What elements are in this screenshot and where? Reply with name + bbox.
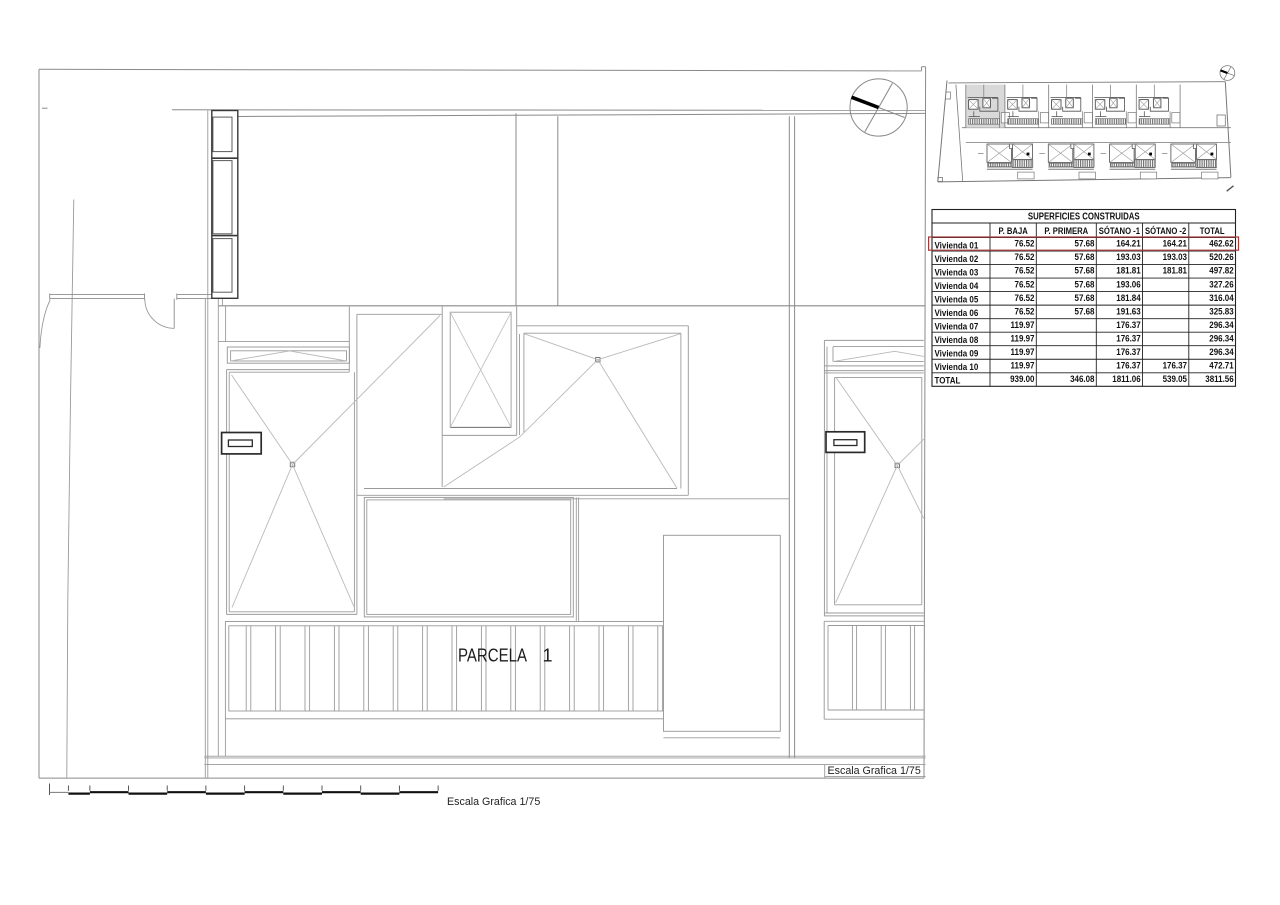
svg-text:76.52: 76.52	[1015, 292, 1035, 303]
svg-text:Vivienda 07: Vivienda 07	[934, 321, 978, 332]
svg-text:3811.56: 3811.56	[1205, 373, 1234, 384]
svg-text:TOTAL: TOTAL	[934, 375, 960, 386]
svg-text:296.34: 296.34	[1209, 319, 1234, 330]
svg-text:327.26: 327.26	[1209, 279, 1234, 290]
svg-text:Vivienda 05: Vivienda 05	[934, 294, 978, 305]
svg-text:193.03: 193.03	[1116, 252, 1141, 263]
svg-text:176.37: 176.37	[1116, 346, 1141, 357]
svg-text:SÓTANO -1: SÓTANO -1	[1099, 224, 1140, 236]
svg-text:191.63: 191.63	[1116, 306, 1141, 317]
svg-text:SÓTANO -2: SÓTANO -2	[1145, 224, 1186, 236]
svg-text:76.52: 76.52	[1015, 265, 1035, 276]
svg-text:P. BAJA: P. BAJA	[999, 225, 1029, 236]
svg-text:193.03: 193.03	[1163, 252, 1188, 263]
svg-text:Vivienda 08: Vivienda 08	[934, 334, 978, 345]
svg-text:Vivienda 03: Vivienda 03	[934, 267, 978, 278]
svg-text:P. PRIMERA: P. PRIMERA	[1044, 225, 1088, 236]
svg-text:181.81: 181.81	[1116, 265, 1141, 276]
svg-text:462.62: 462.62	[1209, 238, 1234, 249]
svg-text:164.21: 164.21	[1116, 238, 1141, 249]
svg-text:76.52: 76.52	[1015, 279, 1035, 290]
svg-text:57.68: 57.68	[1075, 292, 1095, 303]
svg-text:Vivienda 10: Vivienda 10	[934, 362, 978, 373]
svg-text:119.97: 119.97	[1011, 319, 1035, 330]
svg-text:497.82: 497.82	[1209, 265, 1234, 276]
svg-text:472.71: 472.71	[1209, 360, 1234, 371]
svg-text:346.08: 346.08	[1070, 373, 1095, 384]
svg-text:119.97: 119.97	[1011, 333, 1035, 344]
svg-text:1811.06: 1811.06	[1112, 373, 1141, 384]
svg-text:1: 1	[543, 646, 553, 666]
svg-text:Vivienda 02: Vivienda 02	[934, 253, 978, 264]
svg-text:164.21: 164.21	[1163, 238, 1188, 249]
svg-text:939.00: 939.00	[1010, 373, 1035, 384]
svg-text:520.26: 520.26	[1209, 252, 1234, 263]
svg-text:296.34: 296.34	[1209, 333, 1234, 344]
svg-text:Vivienda 01: Vivienda 01	[934, 240, 978, 251]
svg-text:176.37: 176.37	[1116, 360, 1141, 371]
svg-text:Vivienda 06: Vivienda 06	[934, 307, 978, 318]
svg-text:Escala Grafica 1/75: Escala Grafica 1/75	[828, 765, 921, 777]
svg-text:Vivienda 04: Vivienda 04	[934, 280, 978, 291]
svg-text:193.06: 193.06	[1116, 279, 1141, 290]
svg-text:Escala Grafica 1/75: Escala Grafica 1/75	[447, 796, 540, 808]
svg-text:57.68: 57.68	[1075, 279, 1095, 290]
svg-text:57.68: 57.68	[1075, 238, 1095, 249]
svg-text:76.52: 76.52	[1015, 238, 1035, 249]
svg-text:76.52: 76.52	[1015, 252, 1035, 263]
svg-text:PARCELA: PARCELA	[458, 646, 527, 666]
svg-text:57.68: 57.68	[1075, 306, 1095, 317]
svg-text:Vivienda 09: Vivienda 09	[934, 348, 978, 359]
svg-text:119.97: 119.97	[1011, 360, 1035, 371]
svg-text:296.34: 296.34	[1209, 346, 1234, 357]
svg-text:57.68: 57.68	[1075, 252, 1095, 263]
svg-text:181.84: 181.84	[1116, 292, 1141, 303]
svg-text:57.68: 57.68	[1075, 265, 1095, 276]
svg-text:TOTAL: TOTAL	[1200, 225, 1225, 236]
svg-text:181.81: 181.81	[1163, 265, 1188, 276]
svg-text:76.52: 76.52	[1015, 306, 1035, 317]
svg-text:176.37: 176.37	[1116, 333, 1141, 344]
svg-text:539.05: 539.05	[1163, 373, 1188, 384]
svg-text:325.83: 325.83	[1209, 306, 1234, 317]
svg-text:176.37: 176.37	[1116, 319, 1141, 330]
svg-text:SUPERFICIES CONSTRUIDAS: SUPERFICIES CONSTRUIDAS	[1028, 211, 1140, 222]
svg-text:176.37: 176.37	[1163, 360, 1188, 371]
svg-text:316.04: 316.04	[1209, 292, 1234, 303]
svg-text:119.97: 119.97	[1011, 346, 1035, 357]
